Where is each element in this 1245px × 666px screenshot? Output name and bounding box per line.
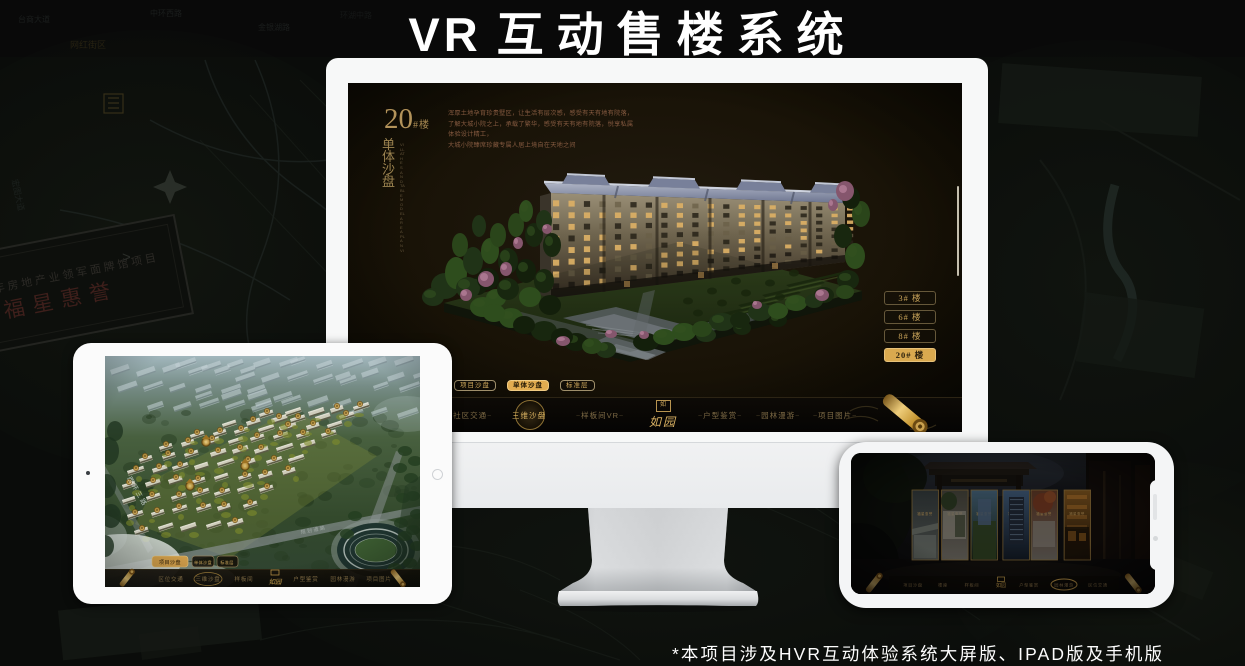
- svg-text:>: >: [122, 249, 131, 266]
